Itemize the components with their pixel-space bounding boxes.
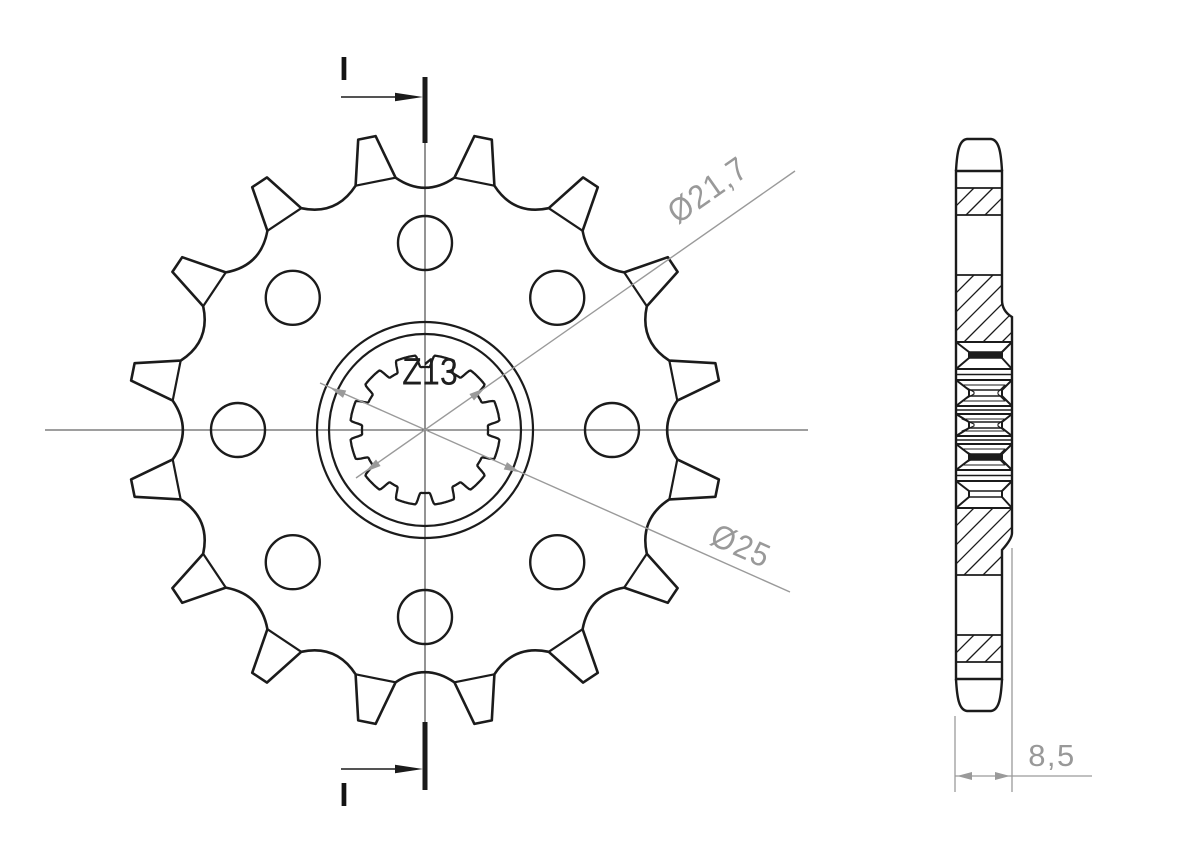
technical-drawing-canvas: Z13 Ø21,7 Ø25 8,5 I I bbox=[0, 0, 1200, 867]
section-marker-top-label: I bbox=[339, 50, 348, 88]
sprocket-drawing bbox=[0, 0, 1200, 867]
section-marker-bottom-label: I bbox=[339, 776, 348, 814]
width-dimension-label: 8,5 bbox=[1028, 738, 1076, 774]
teeth-count-label: Z13 bbox=[402, 352, 458, 395]
